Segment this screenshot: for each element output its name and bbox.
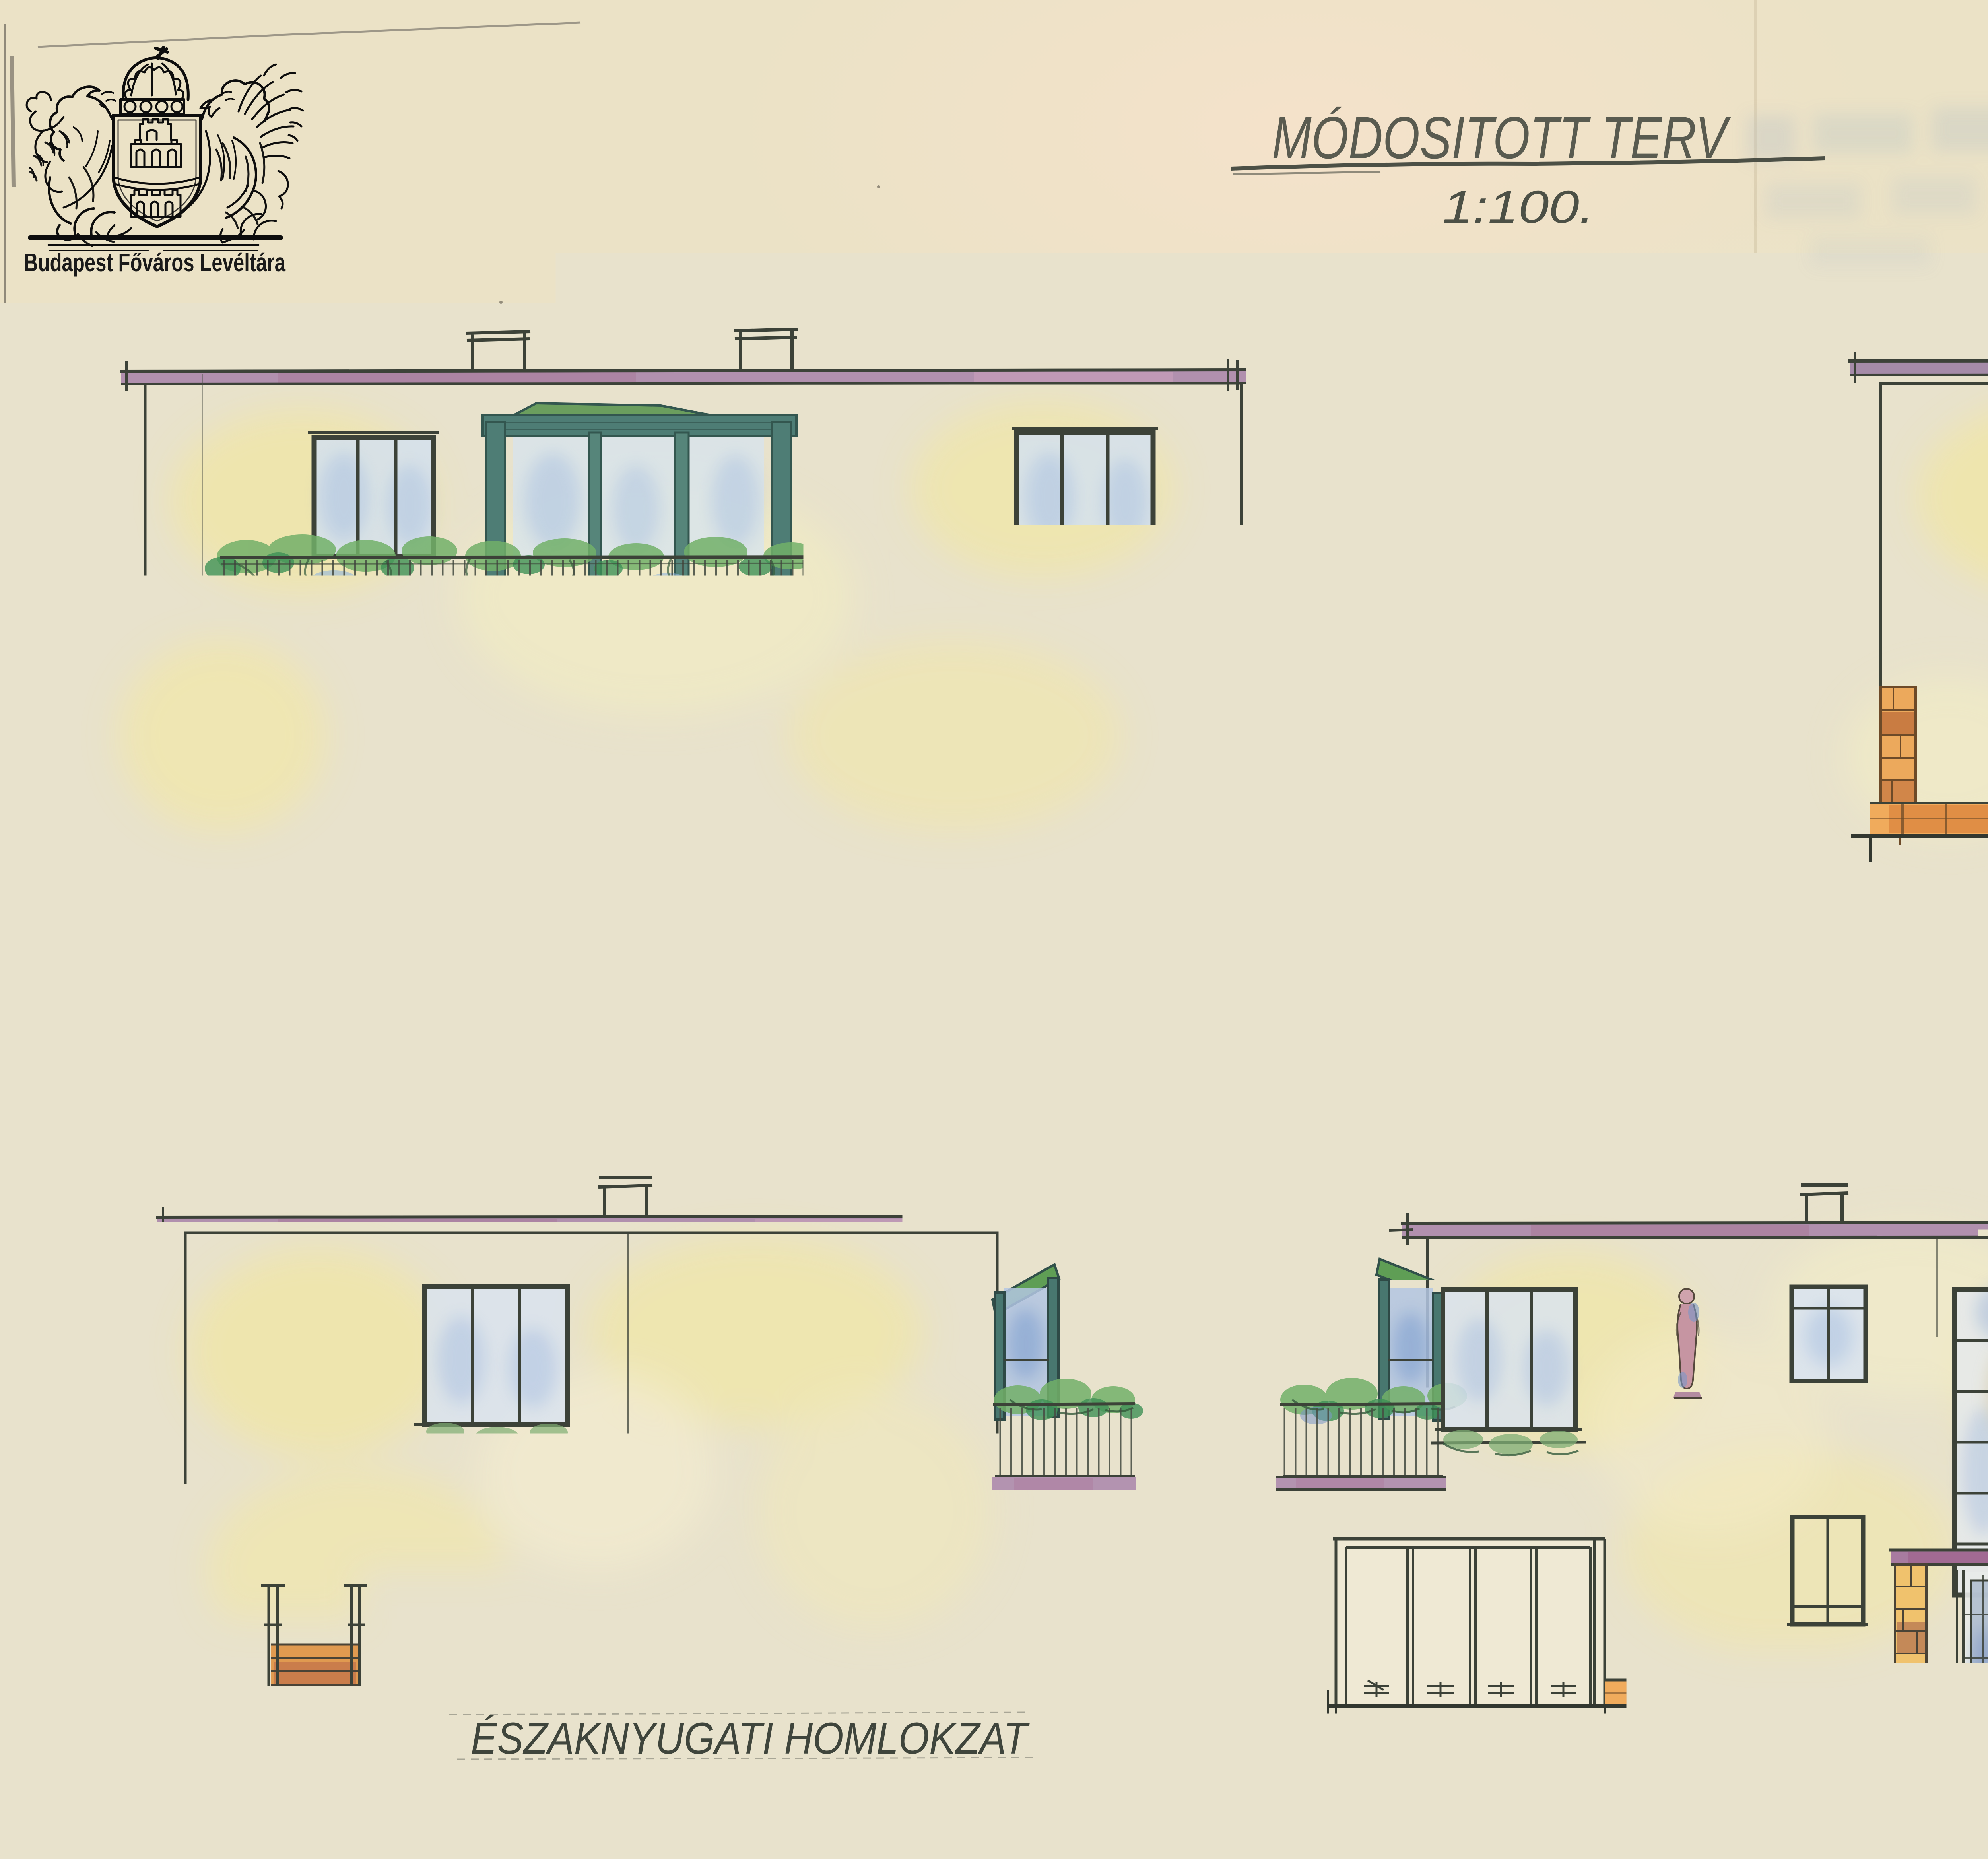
svg-text:Budapest Főváros Levéltára: Budapest Főváros Levéltára xyxy=(24,248,285,277)
svg-text:✶: ✶ xyxy=(1673,613,1688,632)
svg-text:LEPKE-UTCAI HOMLOKZAT: LEPKE-UTCAI HOMLOKZAT xyxy=(496,886,825,935)
svg-text:1:100.: 1:100. xyxy=(1442,182,1594,233)
svg-text:ÉSZAKNYUGATI HOMLOKZAT: ÉSZAKNYUGATI HOMLOKZAT xyxy=(471,1713,1030,1763)
svg-text:NÉVTELEN-UTCAI HOMLOKZAT: NÉVTELEN-UTCAI HOMLOKZAT xyxy=(1415,1714,1988,1764)
svg-text:TERVTÁRA: TERVTÁRA xyxy=(1524,619,1657,670)
svg-text:✶: ✶ xyxy=(1489,618,1504,637)
